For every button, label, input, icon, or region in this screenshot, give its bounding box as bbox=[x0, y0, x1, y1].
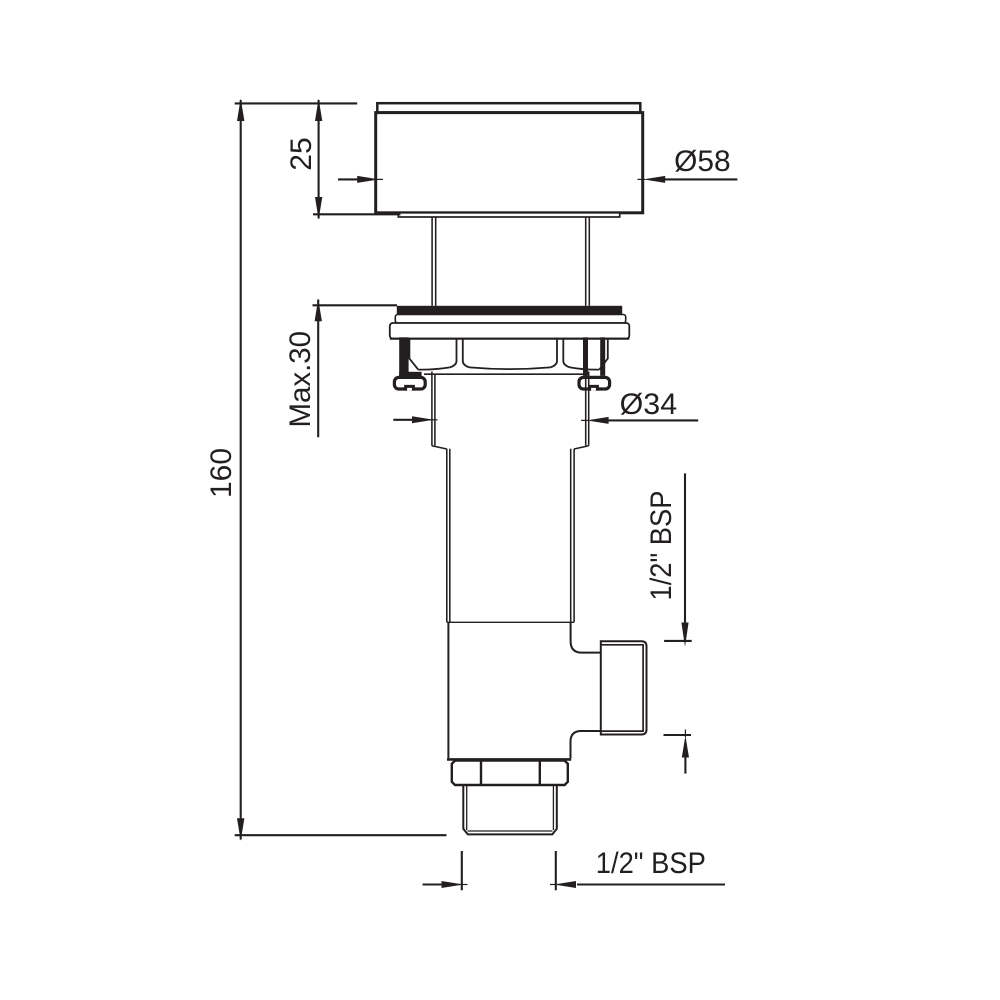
svg-text:25: 25 bbox=[285, 137, 318, 171]
svg-text:1/2" BSP: 1/2" BSP bbox=[645, 491, 678, 601]
svg-text:1/2" BSP: 1/2" BSP bbox=[596, 847, 706, 880]
svg-text:Ø34: Ø34 bbox=[620, 388, 678, 421]
svg-text:Ø58: Ø58 bbox=[674, 145, 731, 178]
svg-text:160: 160 bbox=[205, 448, 238, 498]
svg-text:Max.30: Max.30 bbox=[284, 331, 317, 428]
